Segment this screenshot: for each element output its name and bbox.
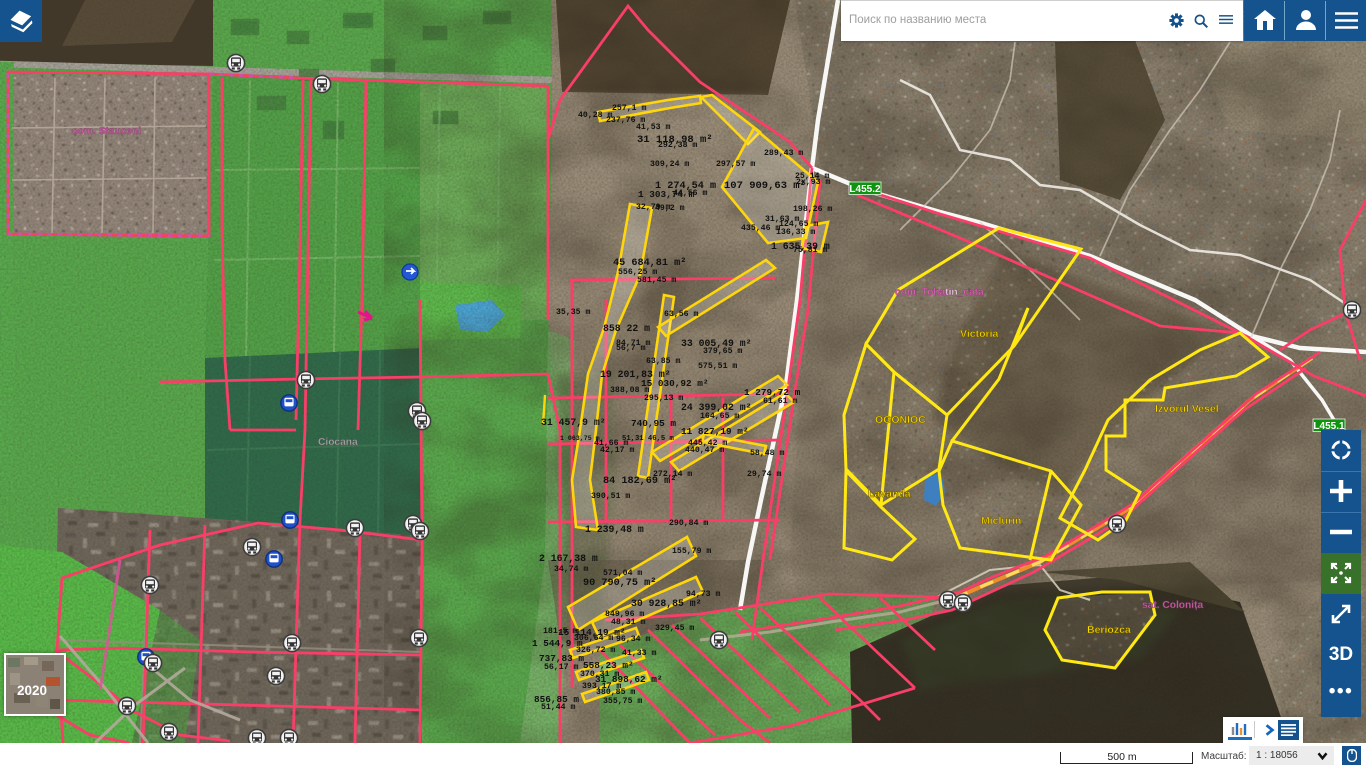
svg-text:com. Stauceni: com. Stauceni: [72, 126, 141, 137]
svg-text:96,34 m: 96,34 m: [616, 635, 650, 644]
svg-text:107 909,63 m²: 107 909,63 m²: [724, 180, 806, 192]
svg-text:2020: 2020: [17, 683, 47, 698]
svg-text:257,1 m: 257,1 m: [612, 104, 646, 113]
svg-text:575,51 m: 575,51 m: [698, 362, 737, 371]
svg-text:58,48 m: 58,48 m: [750, 449, 784, 458]
svg-text:com. Tohatin_cata: com. Tohatin_cata: [895, 287, 984, 298]
svg-text:75,81 m: 75,81 m: [793, 246, 827, 255]
svg-text:379,65 m: 379,65 m: [703, 347, 742, 356]
svg-text:49,2 m: 49,2 m: [655, 204, 685, 213]
svg-text:Lavanda: Lavanda: [868, 488, 911, 500]
svg-text:Beriozca: Beriozca: [1087, 624, 1131, 636]
svg-text:2 167,38 m: 2 167,38 m: [539, 553, 598, 564]
svg-text:29,74 m: 29,74 m: [747, 470, 781, 479]
svg-text:581,45 m: 581,45 m: [637, 276, 676, 285]
svg-text:290,84 m: 290,84 m: [669, 519, 708, 528]
svg-text:63,56 m: 63,56 m: [664, 310, 698, 319]
svg-text:34,74 m: 34,74 m: [554, 565, 588, 574]
svg-text:48,31 m: 48,31 m: [611, 618, 645, 627]
svg-text:292,38 m: 292,38 m: [658, 141, 697, 150]
svg-text:56,17 m: 56,17 m: [544, 663, 578, 672]
svg-text:31 457,9 m²: 31 457,9 m²: [541, 417, 606, 428]
svg-text:Miclurin: Miclurin: [981, 515, 1021, 527]
svg-text:11 827,19 m²: 11 827,19 m²: [681, 426, 749, 437]
svg-text:136,33 m: 136,33 m: [776, 228, 815, 237]
svg-text:42,17 m: 42,17 m: [600, 446, 634, 455]
svg-text:44,56 m: 44,56 m: [673, 189, 707, 198]
svg-text:571,04 m: 571,04 m: [603, 569, 642, 578]
svg-text:63,85 m: 63,85 m: [646, 357, 680, 366]
svg-text:35,35 m: 35,35 m: [556, 308, 590, 317]
svg-text:858 22 m: 858 22 m: [603, 323, 650, 334]
svg-text:155,79 m: 155,79 m: [672, 547, 711, 556]
svg-text:84 182,69 m²: 84 182,69 m²: [603, 476, 676, 487]
svg-text:Izvorul Vesel: Izvorul Vesel: [1155, 403, 1219, 415]
svg-text:440,47 m: 440,47 m: [685, 446, 724, 455]
svg-text:51,31 46,5 m: 51,31 46,5 m: [622, 435, 674, 443]
svg-text:41,53 m: 41,53 m: [636, 123, 670, 132]
svg-text:309,24 m: 309,24 m: [650, 160, 689, 169]
svg-text:295,13 m: 295,13 m: [644, 394, 683, 403]
svg-text:sat. Colonița: sat. Colonița: [1142, 600, 1203, 611]
svg-text:41,33 m: 41,33 m: [622, 649, 656, 658]
svg-text:L455.2: L455.2: [849, 184, 881, 195]
svg-text:164,65 m: 164,65 m: [700, 412, 739, 421]
svg-text:329,45 m: 329,45 m: [655, 624, 694, 633]
svg-text:289,43 m: 289,43 m: [764, 149, 803, 158]
svg-text:380,85 m: 380,85 m: [596, 688, 635, 697]
svg-text:390,51 m: 390,51 m: [591, 492, 630, 501]
svg-text:56,7 m: 56,7 m: [616, 344, 646, 353]
svg-text:Ciocana: Ciocana: [318, 437, 358, 448]
svg-text:1 239,48 m: 1 239,48 m: [585, 524, 644, 535]
svg-text:740,95 m: 740,95 m: [631, 418, 676, 429]
svg-text:90 790,75 m²: 90 790,75 m²: [583, 578, 656, 589]
svg-text:30 928,85 m²: 30 928,85 m²: [631, 598, 702, 609]
svg-text:15 030,92 m²: 15 030,92 m²: [641, 378, 709, 389]
svg-text:61,61 m: 61,61 m: [763, 397, 797, 406]
svg-text:435,46 m: 435,46 m: [741, 224, 780, 233]
svg-text:OGONIOC: OGONIOC: [875, 414, 926, 426]
svg-text:51,44 m: 51,44 m: [541, 703, 575, 712]
svg-text:198,26 m: 198,26 m: [793, 205, 832, 214]
svg-text:297,57 m: 297,57 m: [716, 160, 755, 169]
svg-text:355,75 m: 355,75 m: [603, 697, 642, 706]
svg-text:Victoria: Victoria: [960, 328, 998, 340]
